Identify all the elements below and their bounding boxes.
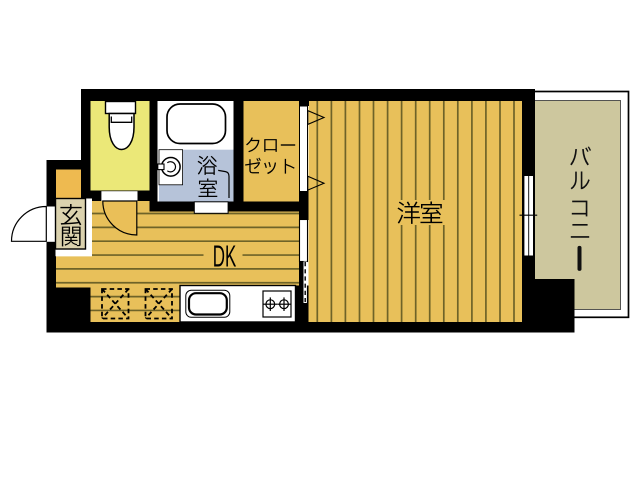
svg-text:DK: DK bbox=[213, 239, 237, 273]
